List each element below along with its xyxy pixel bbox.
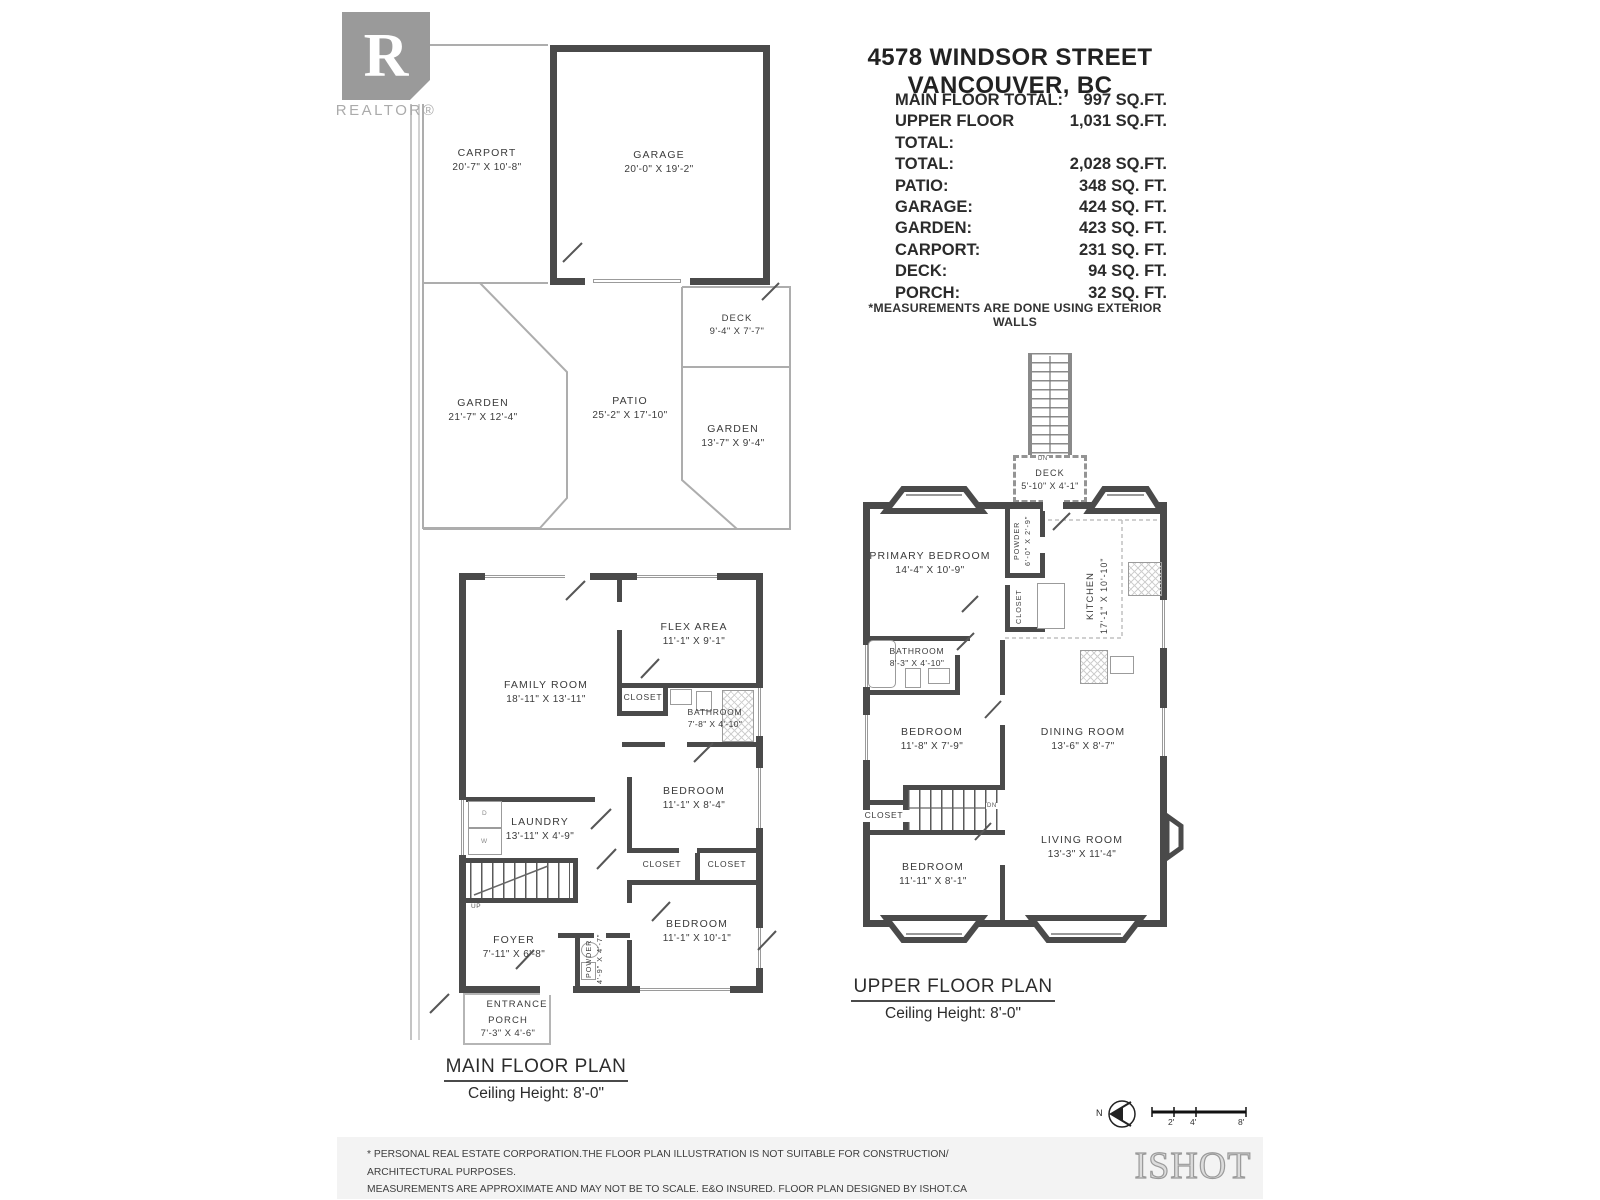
room-label-bedroom1-main: BEDROOM 11'-1" X 8'-4" (634, 784, 754, 813)
room-label-dining-room: DINING ROOM 13'-6" X 8'-7" (1023, 725, 1143, 754)
room-label-closet2: CLOSET (633, 859, 691, 871)
disclaimer: * PERSONAL REAL ESTATE CORPORATION.THE F… (367, 1146, 967, 1200)
room-label-porch: PORCH 7'-3" X 4'-6" (458, 1014, 558, 1041)
area-summary-table: MAIN FLOOR TOTAL:997 SQ.FT. UPPER FLOOR … (895, 90, 1167, 304)
room-dims: 20'-7" X 10'-8" (427, 161, 547, 175)
room-name: POWDER (584, 933, 595, 985)
bay-window (886, 489, 982, 511)
room-name: BEDROOM (634, 784, 754, 799)
room-name: CLOSET (1014, 585, 1023, 628)
summary-label: PATIO: (895, 176, 1079, 197)
room-label-living-room: LIVING ROOM 13'-3" X 11'-4" (1022, 833, 1142, 862)
room-dims: 13'-11" X 4'-9" (480, 830, 600, 844)
room-name: BEDROOM (637, 917, 757, 932)
room-name: PORCH (458, 1014, 558, 1027)
room-name: BEDROOM (873, 860, 993, 875)
summary-label: TOTAL: (895, 154, 1070, 175)
room-dims: 7'-8" X 4'-10" (665, 719, 765, 731)
summary-value: 231 SQ. FT. (1079, 240, 1167, 261)
room-label-garden-left: GARDEN 21'-7" X 12'-4" (423, 396, 543, 425)
room-label-family-room: FAMILY ROOM 18'-11" X 13'-11" (476, 678, 616, 707)
room-dims: 13'-7" X 9'-4" (673, 437, 793, 451)
scale-label-4ft: 4' (1190, 1117, 1196, 1127)
realtor-logo-letter: R (364, 25, 409, 87)
room-label-primary-bedroom: PRIMARY BEDROOM 14'-4" X 10'-9" (860, 549, 1000, 578)
room-dims: 5'-10" X 4'-1" (1000, 480, 1100, 493)
room-label-bedroom1-upper: BEDROOM 11'-8" X 7'-9" (872, 725, 992, 754)
room-label-closet3: CLOSET (699, 859, 755, 871)
summary-label: UPPER FLOOR TOTAL: (895, 111, 1070, 154)
room-name: LIVING ROOM (1022, 833, 1142, 848)
realtor-logo-fold (406, 74, 436, 104)
room-label-garage: GARAGE 20'-0" X 19'-2" (599, 148, 719, 177)
summary-value: 348 SQ. FT. (1079, 176, 1167, 197)
room-label-carport: CARPORT 20'-7" X 10'-8" (427, 146, 547, 175)
room-dims: 14'-4" X 10'-9" (860, 564, 1000, 578)
room-name: CLOSET (699, 859, 755, 871)
upper-floor-plan-title: UPPER FLOOR PLAN (851, 976, 1054, 1002)
room-name: GARDEN (423, 396, 543, 411)
main-floor-plan-title: MAIN FLOOR PLAN (444, 1056, 629, 1082)
room-dims: 6'-0" X 2'-9" (1023, 511, 1034, 571)
room-name: CLOSET (633, 859, 691, 871)
room-label-bathroom-main: BATHROOM 7'-8" X 4'-10" (665, 707, 765, 731)
room-dims: 11'-1" X 10'-1" (637, 932, 757, 946)
room-label-bedroom2-upper: BEDROOM 11'-11" X 8'-1" (873, 860, 993, 889)
room-name: ENTRANCE (467, 998, 567, 1011)
summary-label: GARDEN: (895, 218, 1079, 239)
room-label-laundry: LAUNDRY 13'-11" X 4'-9" (480, 815, 600, 844)
floor-plan-page: R REALTOR® 4578 WINDSOR STREET VANCOUVER… (0, 0, 1600, 1200)
room-dims: 13'-3" X 11'-4" (1022, 848, 1142, 862)
summary-value: 2,028 SQ.FT. (1070, 154, 1167, 175)
room-name: GARDEN (673, 422, 793, 437)
room-label-deck-main: DECK 9'-4" X 7'-7" (687, 312, 787, 339)
room-label-powder-upper: POWDER 6'-0" X 2'-9" (1012, 511, 1034, 571)
summary-value: 423 SQ. FT. (1079, 218, 1167, 239)
room-name: CARPORT (427, 146, 547, 161)
room-dims: 11'-11" X 8'-1" (873, 875, 993, 889)
summary-label: DECK: (895, 261, 1088, 282)
bay-window (886, 918, 982, 940)
summary-label: GARAGE: (895, 197, 1079, 218)
bay-window (1031, 918, 1141, 940)
upper-floor-ceiling-height: Ceiling Height: 8'-0" (848, 1005, 1058, 1023)
site-lines-overlay (0, 0, 1600, 1200)
room-dims: 25'-2" X 17'-10" (570, 409, 690, 423)
room-label-powder-main: POWDER 4'-9" X 4'-7" (584, 933, 606, 985)
summary-row: UPPER FLOOR TOTAL:1,031 SQ.FT. (895, 111, 1167, 154)
room-label-flex-area: FLEX AREA 11'-1" X 9'-1" (634, 620, 754, 649)
main-floor-title: MAIN FLOOR PLAN Ceiling Height: 8'-0" (436, 1056, 636, 1103)
room-dims: 18'-11" X 13'-11" (476, 693, 616, 707)
room-label-patio: PATIO 25'-2" X 17'-10" (570, 394, 690, 423)
summary-row: GARDEN:423 SQ. FT. (895, 218, 1167, 239)
summary-row: PATIO:348 SQ. FT. (895, 176, 1167, 197)
room-dims: 8'-3" X 4'-10" (857, 658, 977, 670)
summary-label: MAIN FLOOR TOTAL: (895, 90, 1084, 111)
fireplace-bump (1167, 816, 1181, 858)
upper-floor-title: UPPER FLOOR PLAN Ceiling Height: 8'-0" (848, 976, 1058, 1023)
room-name: PATIO (570, 394, 690, 409)
room-label-bedroom2-main: BEDROOM 11'-1" X 10'-1" (637, 917, 757, 946)
room-dims: 20'-0" X 19'-2" (599, 163, 719, 177)
room-dims: 13'-6" X 8'-7" (1023, 740, 1143, 754)
summary-value: 424 SQ. FT. (1079, 197, 1167, 218)
room-dims: 11'-1" X 9'-1" (634, 635, 754, 649)
summary-row: CARPORT:231 SQ. FT. (895, 240, 1167, 261)
realtor-logo-icon: R (342, 12, 430, 100)
deck-dn-label: DN (1037, 456, 1049, 462)
scale-label-2ft: 2' (1168, 1117, 1174, 1127)
room-name: GARAGE (599, 148, 719, 163)
summary-value: 94 SQ. FT. (1088, 261, 1167, 282)
room-name: FLEX AREA (634, 620, 754, 635)
room-name: BATHROOM (857, 646, 977, 658)
room-label-deck-upper: DECK 5'-10" X 4'-1" (1000, 467, 1100, 492)
room-name: DECK (687, 312, 787, 325)
stairs-up-label: UP (471, 903, 481, 910)
compass-north-label: N (1096, 1108, 1103, 1118)
room-name: DECK (1000, 467, 1100, 480)
room-dims: 11'-1" X 8'-4" (634, 799, 754, 813)
summary-row: DECK:94 SQ. FT. (895, 261, 1167, 282)
summary-value: 1,031 SQ.FT. (1070, 111, 1167, 154)
room-label-bathroom-upper: BATHROOM 8'-3" X 4'-10" (857, 646, 977, 670)
summary-value: 997 SQ.FT. (1084, 90, 1167, 111)
room-name: BEDROOM (872, 725, 992, 740)
room-label-entrance: ENTRANCE (467, 998, 567, 1011)
room-name: POWDER (1012, 511, 1023, 571)
measurement-note: *MEASUREMENTS ARE DONE USING EXTERIOR WA… (850, 301, 1180, 329)
room-dims: 4'-9" X 4'-7" (595, 933, 606, 985)
room-name: FAMILY ROOM (476, 678, 616, 693)
summary-label: CARPORT: (895, 240, 1079, 261)
scale-label-8ft: 8' (1238, 1117, 1244, 1127)
room-dims: 7'-11" X 6'-8" (464, 948, 564, 962)
room-dims: 7'-3" X 4'-6" (458, 1027, 558, 1040)
room-name: PRIMARY BEDROOM (860, 549, 1000, 564)
room-name: LAUNDRY (480, 815, 600, 830)
summary-row-total: TOTAL:2,028 SQ.FT. (895, 154, 1167, 175)
summary-row: MAIN FLOOR TOTAL:997 SQ.FT. (895, 90, 1167, 111)
room-name: FOYER (464, 933, 564, 948)
room-dims: 11'-8" X 7'-9" (872, 740, 992, 754)
room-label-closet1: CLOSET (620, 692, 666, 704)
room-name: CLOSET (855, 810, 913, 822)
room-dims: 21'-7" X 12'-4" (423, 411, 543, 425)
stairs-dn-label: DN (986, 803, 998, 809)
room-dims: 17'-1" X 10'-10" (1098, 558, 1111, 634)
main-floor-ceiling-height: Ceiling Height: 8'-0" (436, 1085, 636, 1103)
room-label-foyer: FOYER 7'-11" X 6'-8" (464, 933, 564, 962)
room-name: DINING ROOM (1023, 725, 1143, 740)
realtor-logo-caption: REALTOR® (330, 102, 442, 119)
bay-window (1089, 489, 1161, 511)
room-label-closet-upper2: CLOSET (855, 810, 913, 822)
summary-row: GARAGE:424 SQ. FT. (895, 197, 1167, 218)
ishot-logo: ISHOT (1128, 1144, 1258, 1188)
room-dims: 9'-4" X 7'-7" (687, 325, 787, 338)
room-label-garden-right: GARDEN 13'-7" X 9'-4" (673, 422, 793, 451)
disclaimer-line-2: MEASUREMENTS ARE APPROXIMATE AND MAY NOT… (367, 1181, 967, 1200)
room-label-closet-upper1: CLOSET (1014, 585, 1023, 628)
disclaimer-line-1: * PERSONAL REAL ESTATE CORPORATION.THE F… (367, 1146, 967, 1181)
room-name: CLOSET (620, 692, 666, 704)
room-name: BATHROOM (665, 707, 765, 719)
room-label-kitchen: KITCHEN 17'-1" X 10'-10" (1084, 558, 1111, 634)
room-name: KITCHEN (1084, 558, 1098, 634)
